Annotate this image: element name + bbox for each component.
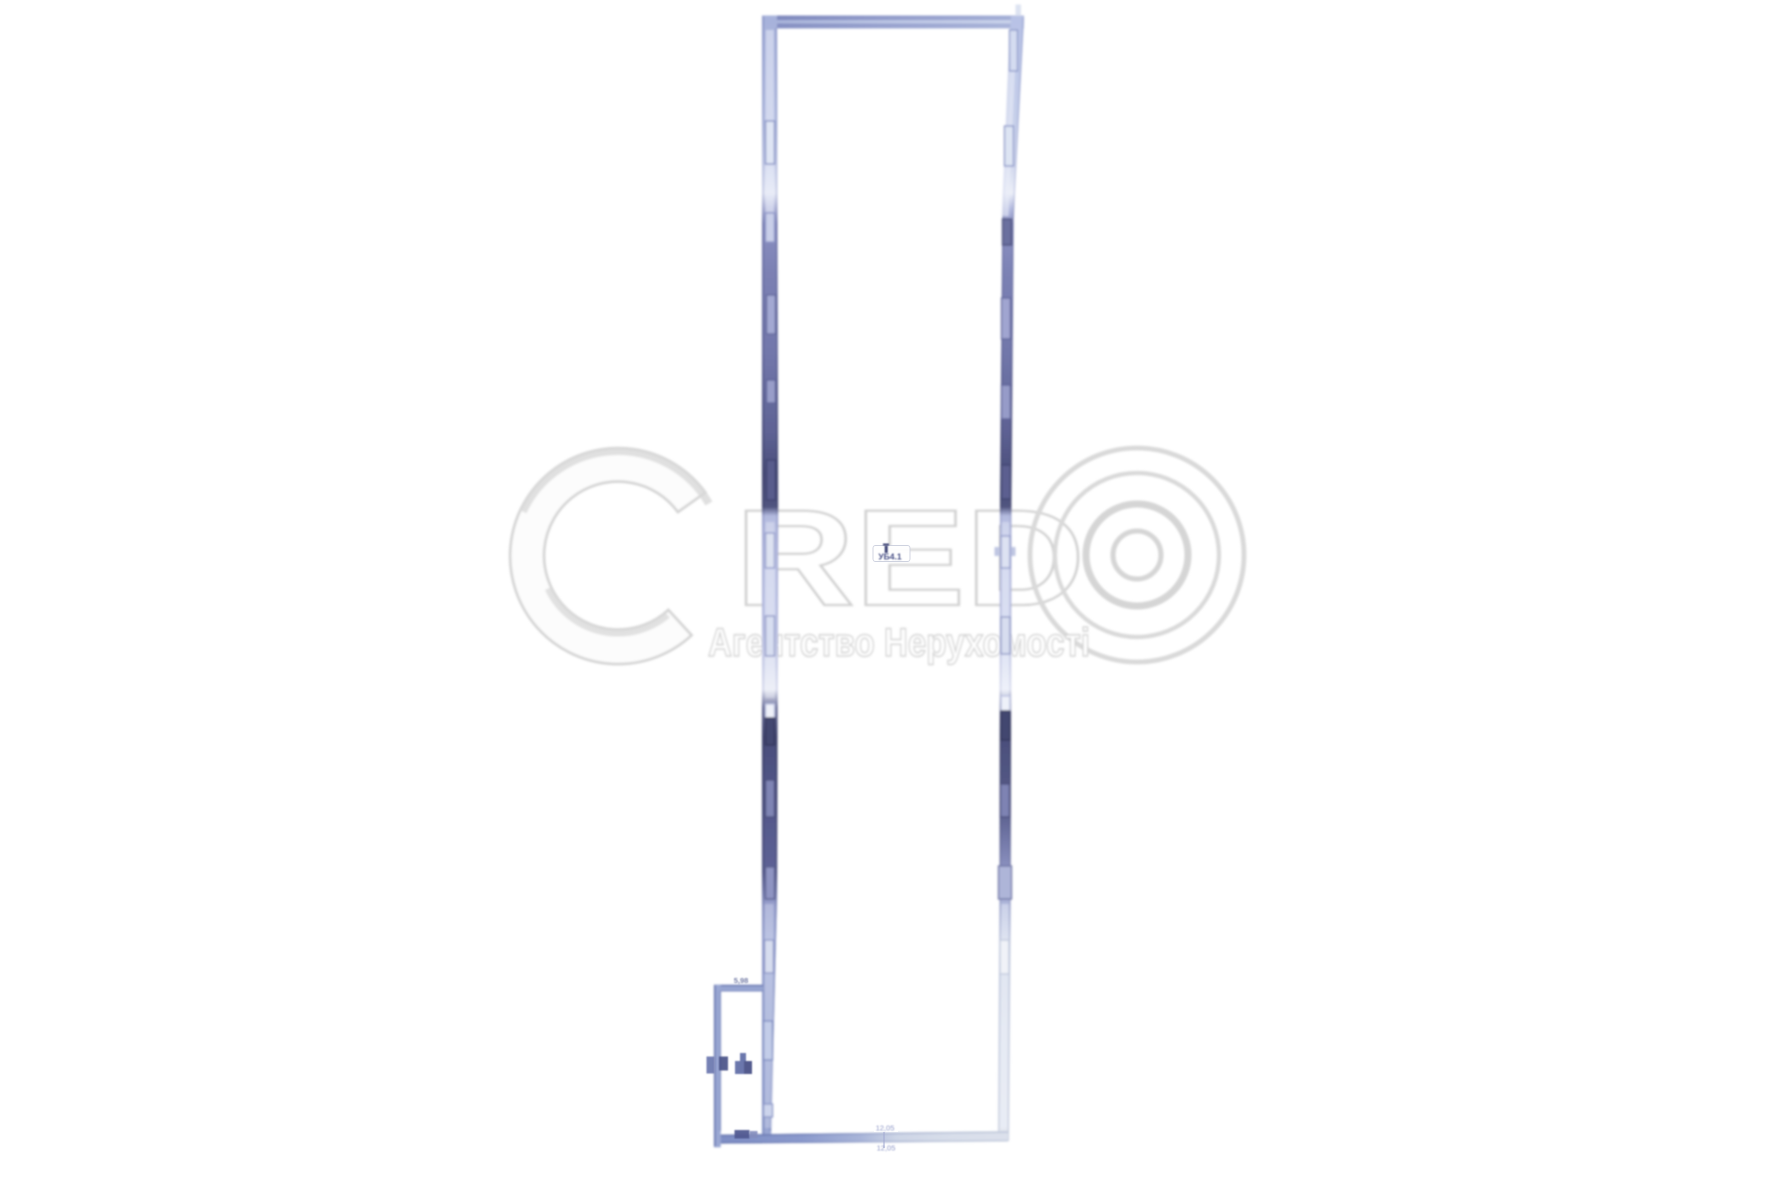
svg-text:12,05: 12,05 (876, 1124, 895, 1133)
svg-text:5,98: 5,98 (734, 976, 749, 985)
svg-text:12,05: 12,05 (877, 1144, 896, 1153)
svg-text:УБ4.1: УБ4.1 (878, 552, 901, 562)
